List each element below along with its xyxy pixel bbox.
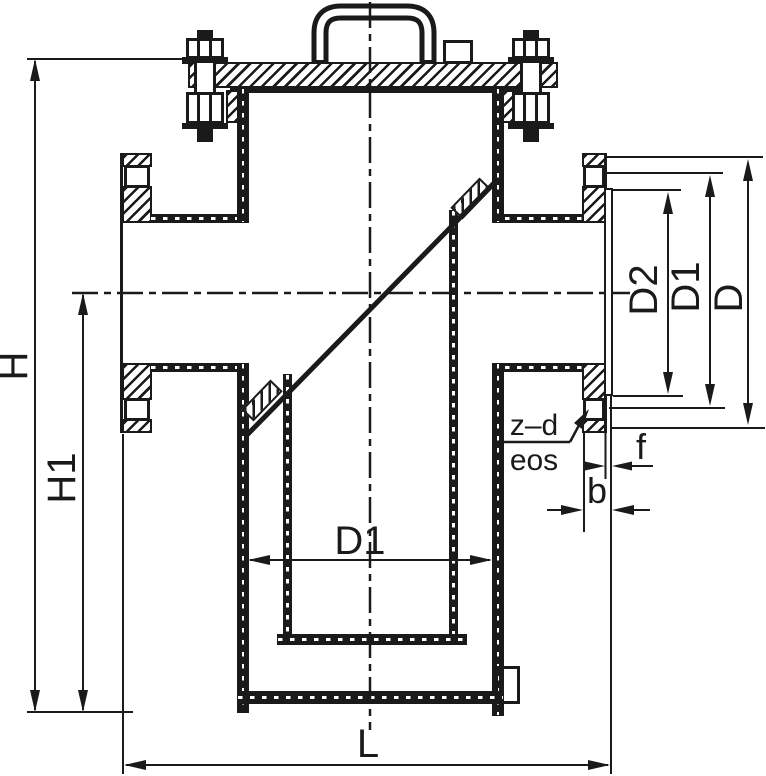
drawing-lines [0, 0, 766, 776]
strainer-section-drawing: H H1 D1 L D2 D1 D z–d eos f b [0, 0, 766, 776]
dim-label-H1: H1 [40, 454, 84, 502]
dim-label-z-d: z–d [500, 412, 568, 440]
dim-H [27, 59, 186, 712]
dim-label-f: f [627, 430, 655, 464]
dim-label-H: H [0, 344, 34, 388]
cover-handle [320, 12, 428, 63]
dim-label-D2: D2 [622, 266, 666, 314]
centerlines [72, 2, 630, 730]
dim-label-D1-body: D1 [326, 521, 394, 561]
dim-label-eos: eos [500, 447, 568, 475]
dim-label-D: D [707, 276, 751, 320]
dim-label-b: b [583, 474, 611, 508]
dim-label-L: L [346, 724, 390, 764]
dim-label-D1-flange: D1 [664, 263, 708, 311]
basket-seat-diagonal [245, 179, 498, 437]
